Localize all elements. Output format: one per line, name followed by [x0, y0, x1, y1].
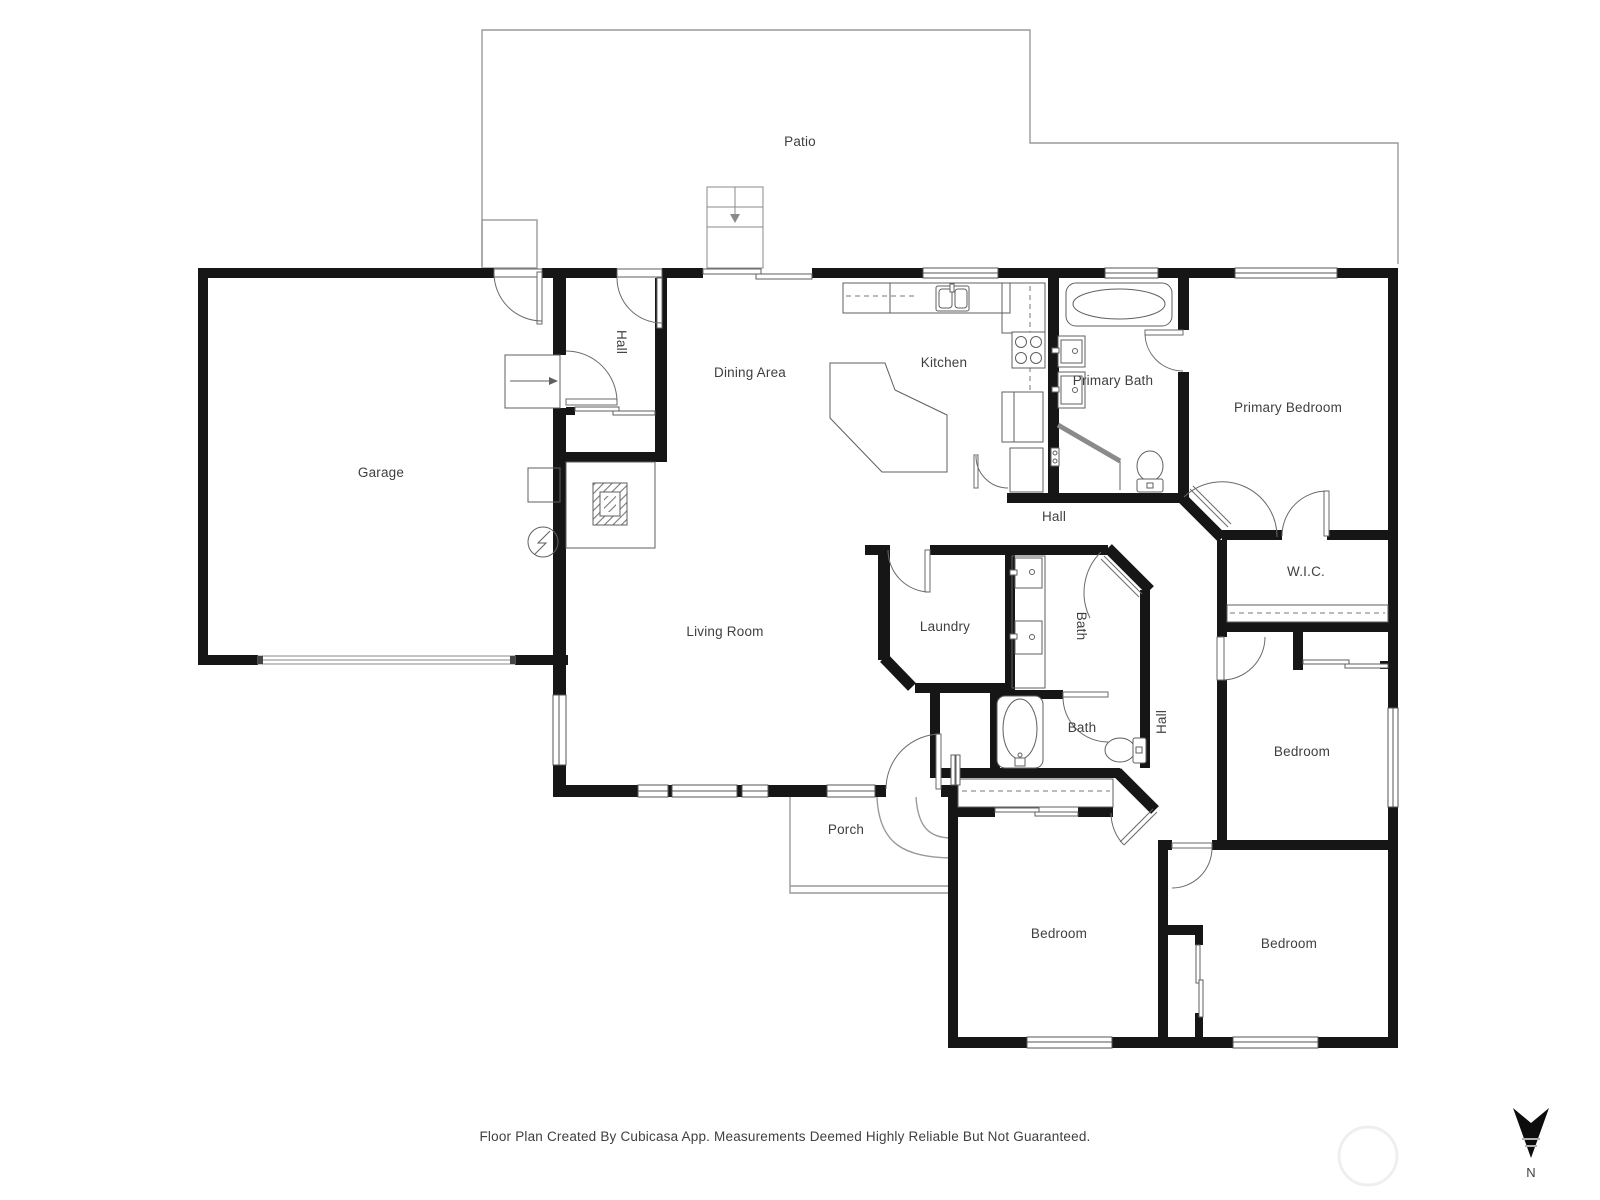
garage-door	[258, 656, 515, 664]
room-label-laundry: Laundry	[920, 619, 970, 634]
footer-disclaimer: Floor Plan Created By Cubicasa App. Meas…	[479, 1129, 1090, 1144]
north-label: N	[1526, 1165, 1536, 1180]
garage-hall-door	[566, 351, 617, 405]
room-label-porch: Porch	[828, 822, 864, 837]
vanity-sink	[1010, 558, 1042, 588]
window	[1027, 1037, 1112, 1048]
closets	[575, 407, 1388, 1017]
patio-steps	[707, 187, 763, 268]
room-label-hall-right: Hall	[1154, 710, 1169, 734]
bedroom-right-closet-sliding-door	[1303, 660, 1388, 668]
bath-upper-door	[1084, 552, 1142, 618]
floor-plan-canvas: Patio Garage Hall Dining Area Kitchen Pr…	[0, 0, 1600, 1200]
room-labels: Patio Garage Hall Dining Area Kitchen Pr…	[358, 134, 1342, 951]
laundry-door	[888, 550, 930, 592]
window	[1105, 268, 1158, 278]
window	[553, 695, 566, 765]
furnace	[566, 462, 655, 548]
step-arrow	[549, 377, 558, 385]
bathtub	[1066, 283, 1172, 326]
north-arrow-icon	[1513, 1108, 1549, 1158]
toilet	[1137, 451, 1163, 492]
floor-plan-page: Patio Garage Hall Dining Area Kitchen Pr…	[0, 0, 1600, 1200]
patio-outline	[482, 30, 1398, 268]
window	[742, 785, 768, 797]
window	[1388, 708, 1398, 807]
entry-closet-sliding-door	[575, 407, 655, 415]
bath-upper-fixtures	[1010, 556, 1045, 688]
kitchen-counter	[843, 283, 1010, 313]
window	[1235, 268, 1337, 278]
pantry-door	[974, 455, 1008, 488]
garage-service-door	[494, 269, 542, 324]
patio-sliding-door	[703, 269, 812, 279]
bedroom-bottom-left-door	[1111, 809, 1157, 845]
wic-closet-rod	[1227, 605, 1388, 622]
window	[638, 785, 668, 797]
window	[1233, 1037, 1318, 1048]
room-label-primary-bedroom: Primary Bedroom	[1234, 400, 1342, 415]
vanity-sink	[1010, 621, 1042, 654]
garage-steps	[505, 355, 560, 408]
window	[672, 785, 737, 797]
north-compass: N	[1513, 1108, 1549, 1180]
windows	[553, 268, 1398, 1048]
watermark-circle	[1339, 1127, 1397, 1185]
room-label-hall-entry: Hall	[614, 330, 629, 354]
shower	[1051, 425, 1120, 490]
room-label-patio: Patio	[784, 134, 816, 149]
stove	[1012, 332, 1045, 368]
room-label-dining: Dining Area	[714, 365, 786, 380]
room-label-bedroom-bottom-right: Bedroom	[1261, 936, 1317, 951]
entry-nook-door	[951, 755, 960, 785]
porch-outline	[790, 797, 952, 893]
room-label-primary-bath: Primary Bath	[1073, 373, 1153, 388]
wic-door	[1282, 491, 1329, 536]
room-label-bath-lower: Bath	[1068, 720, 1097, 735]
kitchen-sink	[936, 284, 969, 311]
toilet	[1105, 738, 1146, 763]
room-label-garage: Garage	[358, 465, 404, 480]
step-direction-arrow	[730, 214, 740, 223]
kitchen-fixtures	[830, 283, 1045, 492]
room-label-kitchen: Kitchen	[921, 355, 967, 370]
primary-bath-door	[1145, 330, 1183, 371]
bedroom-bottom-right-door	[1172, 843, 1212, 888]
kitchen-counter-right	[1002, 283, 1045, 333]
bathtub	[997, 696, 1043, 768]
window	[827, 785, 875, 797]
window	[923, 268, 998, 278]
room-label-hall-center: Hall	[1042, 509, 1066, 524]
kitchen-island	[830, 363, 947, 472]
room-label-bath-upper: Bath	[1074, 612, 1089, 641]
pantry	[1010, 448, 1043, 492]
refrigerator	[1002, 392, 1043, 442]
bedroom-right-door	[1217, 637, 1265, 680]
room-label-living: Living Room	[686, 624, 763, 639]
room-label-bedroom-bottom-left: Bedroom	[1031, 926, 1087, 941]
bedroom-bottom-right-closet-sliding-door	[1196, 945, 1203, 1017]
room-label-wic: W.I.C.	[1287, 564, 1325, 579]
room-label-bedroom-right: Bedroom	[1274, 744, 1330, 759]
